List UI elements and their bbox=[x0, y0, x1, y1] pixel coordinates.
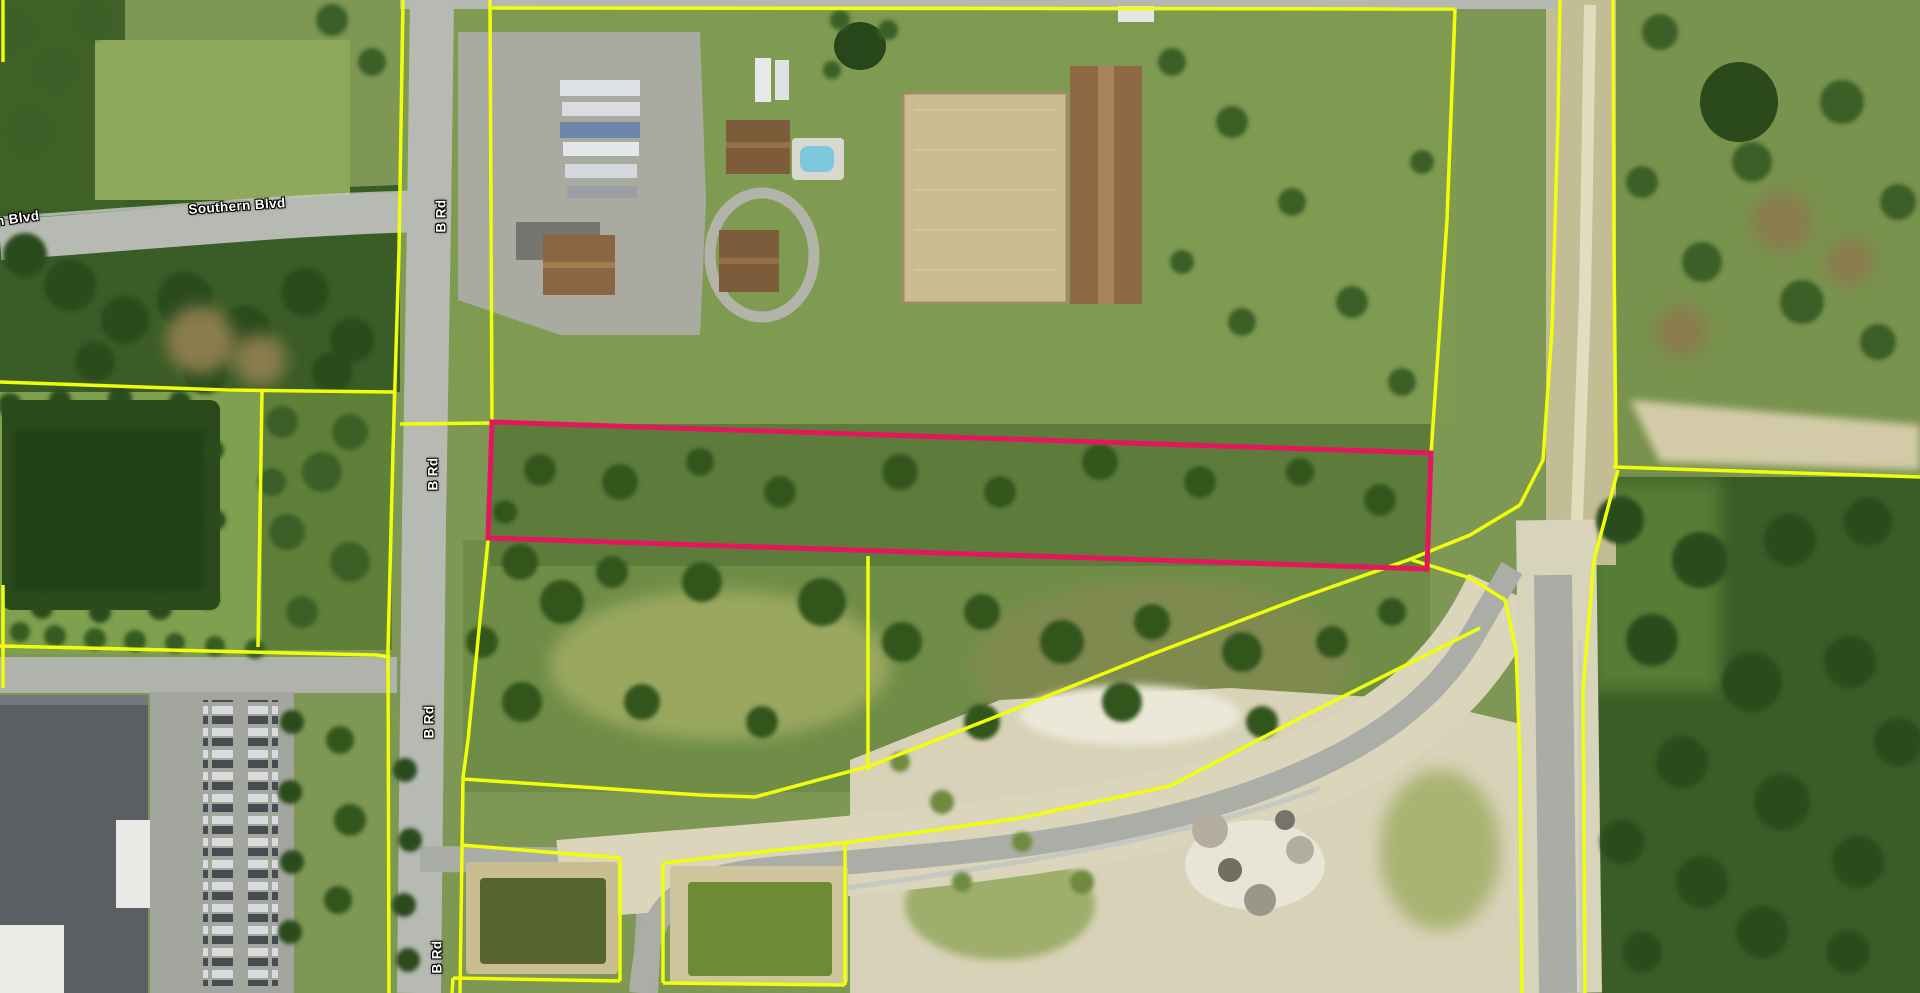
map-viewport[interactable]: Southern BlvdSouthern BlvdB RdB RdB RdB … bbox=[0, 0, 1920, 993]
parcel-line bbox=[452, 978, 453, 993]
parcel-line bbox=[663, 983, 845, 985]
parcel-line bbox=[490, 8, 1455, 9]
parcel-line bbox=[490, 0, 492, 422]
aerial-basemap bbox=[0, 0, 1920, 993]
parcel-line bbox=[400, 423, 492, 424]
